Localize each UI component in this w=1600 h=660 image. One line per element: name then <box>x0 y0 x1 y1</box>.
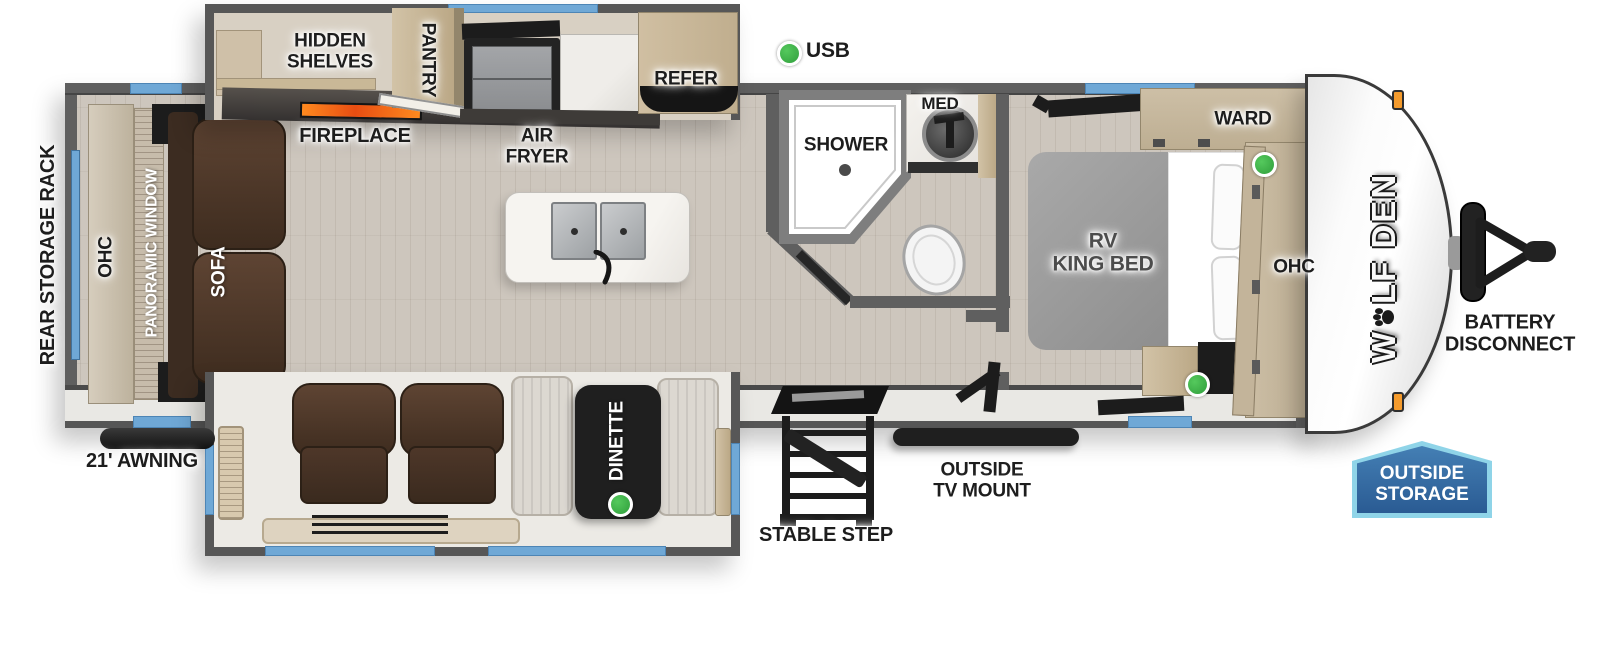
fireplace-label: FIREPLACE <box>299 126 411 148</box>
rear-storage-rack-label: REAR STORAGE RACK <box>38 145 60 366</box>
usb-indicator-dot <box>777 41 802 66</box>
window <box>731 443 740 515</box>
bedroom-ohc-label: OHC <box>1273 258 1315 279</box>
air-fryer-label: AIRFRYER <box>506 126 569 167</box>
entry-step-well <box>771 386 889 414</box>
awning-roll <box>100 428 215 449</box>
usb-port-indicator <box>608 492 633 517</box>
paw-icon <box>1372 304 1398 330</box>
footrest-steps <box>312 514 448 534</box>
brand-logo-suffix: LF DEN <box>1365 173 1402 304</box>
dinette-label: DINETTE <box>608 401 629 481</box>
sofa-label: SOFA <box>210 247 231 298</box>
counter-front-edge <box>460 109 660 126</box>
hitch-coupler <box>1524 241 1556 262</box>
bath-wardrobe-sliver <box>978 94 996 178</box>
tv-mount-bar <box>893 428 1079 446</box>
sink-faucet-icon <box>590 250 618 286</box>
usb-port-indicator <box>1185 372 1210 397</box>
window <box>1128 416 1192 428</box>
dinette-window-seat <box>715 428 731 516</box>
window <box>448 4 598 13</box>
hidden-shelves-label: HIDDENSHELVES <box>287 31 373 72</box>
window <box>265 546 435 556</box>
sofa-cushion <box>192 118 286 250</box>
wall-stub <box>966 310 1009 322</box>
dinette-bench <box>657 378 719 516</box>
window <box>488 546 666 556</box>
bath-bedroom-wall <box>996 94 1009 332</box>
window <box>205 445 214 515</box>
brand-logo-prefix: W <box>1365 330 1402 363</box>
med-label: MED <box>921 95 958 113</box>
refer-label: REFER <box>654 70 717 91</box>
outside-storage-line1: OUTSIDE <box>1352 463 1492 484</box>
usb-label: USB <box>806 40 850 63</box>
marker-light <box>1392 90 1404 110</box>
usb-port-indicator <box>1252 152 1277 177</box>
wardrobe-handle <box>1153 139 1165 147</box>
ward-label: WARD <box>1214 110 1271 131</box>
pantry-label: PANTRY <box>417 23 438 98</box>
marker-light <box>1392 392 1404 412</box>
sink-drain <box>571 228 578 235</box>
corner-shower <box>775 86 915 248</box>
outside-tv-mount-label: OUTSIDETV MOUNT <box>933 460 1031 501</box>
med-faucet <box>946 120 954 148</box>
kitchen-counter-marble <box>560 34 640 116</box>
stable-step-label: STABLE STEP <box>759 525 893 547</box>
rear-ohc-label: OHC <box>97 236 118 278</box>
dinette-bench <box>511 376 573 516</box>
panoramic-window-label: PANORAMIC WINDOW <box>143 169 160 338</box>
rv-king-bed-label: RVKING BED <box>1052 230 1153 275</box>
theater-seat-cushion <box>300 446 388 504</box>
shower-label: SHOWER <box>804 136 888 157</box>
ohc-hinge <box>1252 360 1260 374</box>
rear-storage-rack <box>71 150 80 360</box>
bath-bottom-wall <box>850 296 1010 308</box>
outside-storage-line2: STORAGE <box>1352 484 1492 505</box>
theater-seat-cushion <box>408 446 496 504</box>
battery-disconnect-label: BATTERYDISCONNECT <box>1445 312 1575 355</box>
sofa-cushion <box>192 252 286 384</box>
floorplan-canvas: WLF DEN OUTSIDE STORAGE USB REAR STORAGE… <box>0 0 1600 660</box>
range-hood <box>462 20 560 39</box>
window <box>130 83 182 94</box>
slideout-window-blinds <box>218 426 244 520</box>
wardrobe-handle <box>1198 139 1210 147</box>
ohc-hinge <box>1252 185 1260 199</box>
outside-storage-badge: OUTSIDE STORAGE <box>1352 441 1492 518</box>
ohc-hinge <box>1252 280 1260 294</box>
range-drawer-line <box>472 78 552 80</box>
window <box>133 416 191 428</box>
sink-drain <box>620 228 627 235</box>
awning-label: 21' AWNING <box>86 451 198 473</box>
brand-logo: WLF DEN <box>1365 173 1403 363</box>
